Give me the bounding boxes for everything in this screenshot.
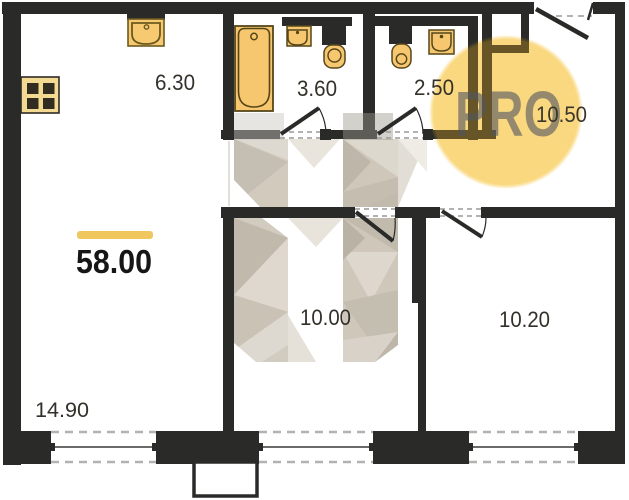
svg-text:10.20: 10.20 — [499, 307, 550, 332]
svg-text:6.30: 6.30 — [155, 70, 195, 95]
svg-text:10.00: 10.00 — [300, 305, 351, 330]
svg-text:10.50: 10.50 — [536, 102, 587, 127]
svg-text:14.90: 14.90 — [35, 398, 89, 422]
svg-text:58.00: 58.00 — [76, 243, 152, 280]
svg-text:2.50: 2.50 — [414, 75, 454, 100]
svg-text:3.60: 3.60 — [297, 76, 337, 101]
